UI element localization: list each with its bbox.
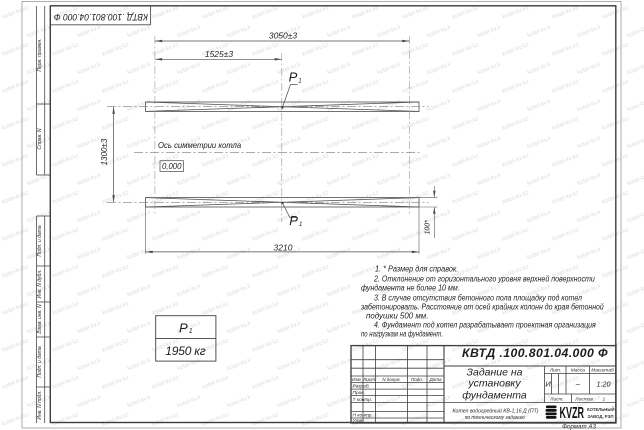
svg-text:1. * Размер для справок.: 1. * Размер для справок. xyxy=(375,265,458,274)
svg-text:3. В случае отсутствия бетонно: 3. В случае отсутствия бетонного пола пл… xyxy=(374,294,583,303)
svg-text:Лит.: Лит. xyxy=(549,367,561,373)
svg-text:N докум.: N докум. xyxy=(382,377,401,382)
svg-text:Масштаб: Масштаб xyxy=(591,367,614,373)
svg-text:Формат А3: Формат А3 xyxy=(562,423,596,430)
svg-text:P: P xyxy=(289,213,298,228)
svg-text:Ось симметрии котла: Ось симметрии котла xyxy=(158,140,242,150)
svg-text:КВТД .100.801.04.000 Ф: КВТД .100.801.04.000 Ф xyxy=(462,346,608,360)
svg-text:подушки 500 мм.: подушки 500 мм. xyxy=(366,312,428,321)
svg-text:1300±3: 1300±3 xyxy=(100,138,109,165)
svg-text:Лист: Лист xyxy=(362,377,375,382)
svg-text:по техническому заданию: по техническому заданию xyxy=(465,415,525,421)
svg-text:Инв. N дубл.: Инв. N дубл. xyxy=(37,270,43,299)
svg-text:забетонировать. Расстояние от: забетонировать. Расстояние от осей крайн… xyxy=(360,303,604,312)
svg-text:фундамента: фундамента xyxy=(462,389,527,401)
svg-text:0,000: 0,000 xyxy=(162,162,182,171)
svg-text:4. Фундамент под котел разраба: 4. Фундамент под котел разрабатывает про… xyxy=(374,321,597,330)
svg-text:Т контр.: Т контр. xyxy=(353,397,373,403)
svg-text:Разраб.: Разраб. xyxy=(353,383,370,389)
svg-text:Н контр.: Н контр. xyxy=(353,412,373,418)
svg-text:1: 1 xyxy=(299,222,302,228)
svg-text:Справ. N: Справ. N xyxy=(37,128,43,149)
svg-text:P: P xyxy=(179,320,188,335)
svg-text:Дата: Дата xyxy=(428,377,442,382)
svg-text:KVZR: KVZR xyxy=(560,405,585,422)
svg-text:КВТД .100.801.04.000 Ф: КВТД .100.801.04.000 Ф xyxy=(54,11,148,22)
svg-text:по нагрузкам на фундамент.: по нагрузкам на фундамент. xyxy=(361,330,443,339)
svg-text:3210: 3210 xyxy=(274,243,293,253)
svg-text:1: 1 xyxy=(298,78,301,84)
svg-text:Подп. и дата: Подп. и дата xyxy=(37,225,43,257)
svg-text:фундамента не более 10 мм.: фундамента не более 10 мм. xyxy=(361,284,460,293)
svg-text:Котел водогрейный КВ-1,16 Д (: Котел водогрейный КВ-1,16 Д (ПТ) xyxy=(453,407,539,414)
svg-text:Масса: Масса xyxy=(571,367,586,373)
svg-text:Перв. примен.: Перв. примен. xyxy=(37,38,43,71)
svg-text:Подп. и дата: Подп. и дата xyxy=(37,346,43,378)
svg-text:1950 кг: 1950 кг xyxy=(165,344,205,358)
svg-text:И: И xyxy=(545,380,551,389)
svg-text:2. Отклонение от горизонтально: 2. Отклонение от горизонтального уровня … xyxy=(373,275,595,284)
svg-text:P: P xyxy=(289,70,298,85)
svg-text:1: 1 xyxy=(602,396,605,402)
svg-text:–: – xyxy=(575,379,581,388)
svg-text:Взам. инв. N: Взам. инв. N xyxy=(37,304,43,334)
svg-text:Утв.: Утв. xyxy=(353,418,364,424)
svg-text:3050±3: 3050±3 xyxy=(269,31,298,41)
svg-text:Изм.: Изм. xyxy=(352,377,362,382)
svg-text:100*: 100* xyxy=(425,220,432,235)
svg-text:1:20: 1:20 xyxy=(597,380,611,389)
svg-text:Листов: Листов xyxy=(574,396,593,402)
svg-text:1: 1 xyxy=(189,328,193,335)
svg-text:Инв. N подл.: Инв. N подл. xyxy=(37,390,43,419)
svg-text:1525±3: 1525±3 xyxy=(205,49,234,59)
svg-text:установку: установку xyxy=(467,377,521,389)
svg-text:ЗАВОД, РЭП: ЗАВОД, РЭП xyxy=(588,414,614,420)
svg-text:Подп.: Подп. xyxy=(411,377,423,382)
svg-text:Пров.: Пров. xyxy=(353,390,366,396)
svg-text:Лист.: Лист. xyxy=(549,396,564,402)
